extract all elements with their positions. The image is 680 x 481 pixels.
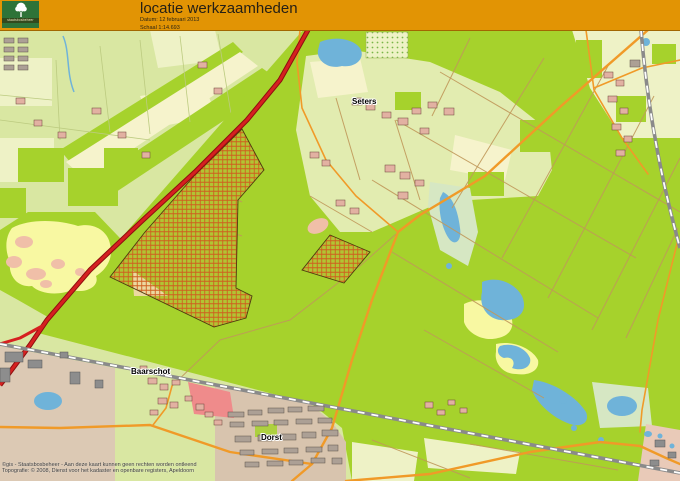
heath-area [6, 221, 111, 293]
map-date: Datum: 12 februari 2013 [140, 17, 298, 24]
credits-line2: Topografie: © 2008, Dienst voor het kada… [2, 468, 197, 474]
page-title: locatie werkzaamheden [140, 1, 298, 16]
header-text: locatie werkzaamheden Datum: 12 februari… [140, 1, 298, 31]
org-logo: staatsbosbeheer [2, 1, 39, 28]
map-document: staatsbosbeheer locatie werkzaamheden Da… [0, 0, 680, 481]
map-scale: Schaal 1:14.693 [140, 25, 298, 32]
tree-icon [12, 2, 30, 18]
place-label-baarschot: Baarschot [131, 367, 170, 376]
place-label-seters: Seters [352, 97, 376, 106]
map-canvas [0, 0, 680, 481]
logo-text: staatsbosbeheer [2, 18, 39, 23]
place-label-dorst: Dorst [261, 433, 282, 442]
map-credits: ©gis - Staatsbosbeheer - Aan deze kaart … [2, 462, 197, 474]
header-bar: staatsbosbeheer locatie werkzaamheden Da… [0, 0, 680, 31]
